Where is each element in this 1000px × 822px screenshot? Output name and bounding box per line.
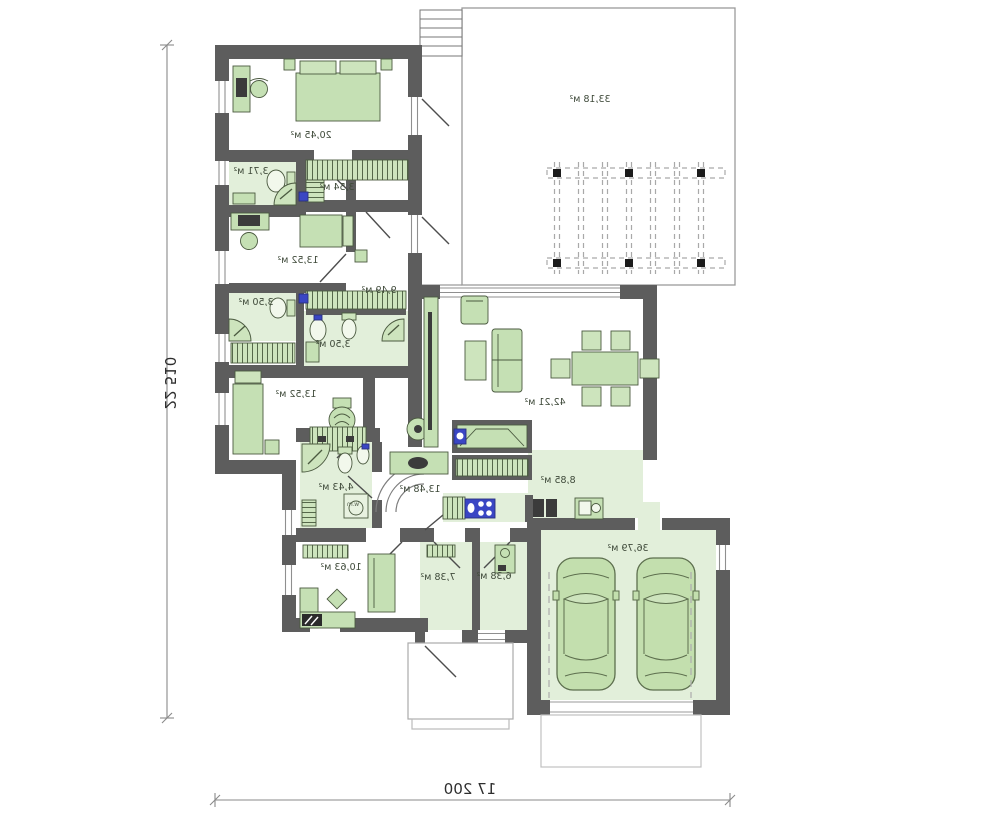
terrace [420, 8, 735, 285]
floor-plan-drawing [0, 0, 1000, 822]
entry-steps-icon [420, 10, 462, 56]
entry-porch [408, 643, 513, 729]
driveway [541, 715, 701, 767]
floor-plan-canvas: 22 510 17 200 20,45 м²3,71 м²3,54 м²13,5… [0, 0, 1000, 822]
